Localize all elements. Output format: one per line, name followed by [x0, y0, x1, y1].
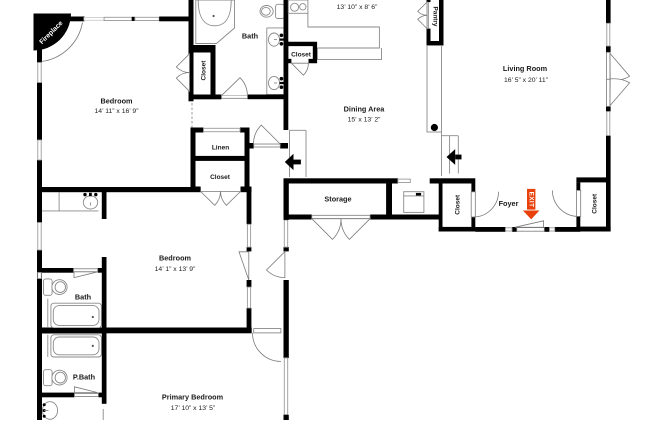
svg-text:Storage: Storage — [324, 195, 351, 204]
svg-text:17’ 10” x 13’ 5”: 17’ 10” x 13’ 5” — [171, 405, 216, 412]
svg-text:Living Room: Living Room — [503, 64, 548, 73]
svg-text:Bedroom: Bedroom — [100, 97, 133, 106]
svg-text:Dining Area: Dining Area — [344, 104, 386, 113]
svg-text:16’ 5” x 20’ 11”: 16’ 5” x 20’ 11” — [504, 77, 549, 84]
svg-text:Bedroom: Bedroom — [159, 254, 192, 263]
svg-text:Closet: Closet — [200, 60, 207, 81]
svg-text:P.Bath: P.Bath — [73, 372, 95, 381]
svg-text:13’ 10” x 8’ 6”: 13’ 10” x 8’ 6” — [337, 4, 378, 11]
svg-text:Primary Bedroom: Primary Bedroom — [162, 393, 224, 402]
svg-text:14’ 11” x 16’ 9”: 14’ 11” x 16’ 9” — [95, 108, 140, 115]
svg-text:Pantry: Pantry — [432, 7, 439, 27]
svg-text:Bath: Bath — [75, 292, 91, 301]
svg-text:Closet: Closet — [455, 194, 462, 215]
svg-text:Closet: Closet — [291, 52, 312, 59]
svg-text:Foyer: Foyer — [499, 199, 519, 208]
svg-text:Closet: Closet — [210, 174, 231, 181]
svg-text:Closet: Closet — [591, 193, 598, 214]
svg-text:14’ 1” x 13’ 9”: 14’ 1” x 13’ 9” — [155, 266, 196, 273]
svg-text:EXIT: EXIT — [528, 192, 535, 208]
svg-text:Linen: Linen — [212, 145, 229, 152]
svg-text:Bath: Bath — [242, 31, 258, 40]
svg-text:15’ x 13’ 2”: 15’ x 13’ 2” — [348, 117, 381, 124]
